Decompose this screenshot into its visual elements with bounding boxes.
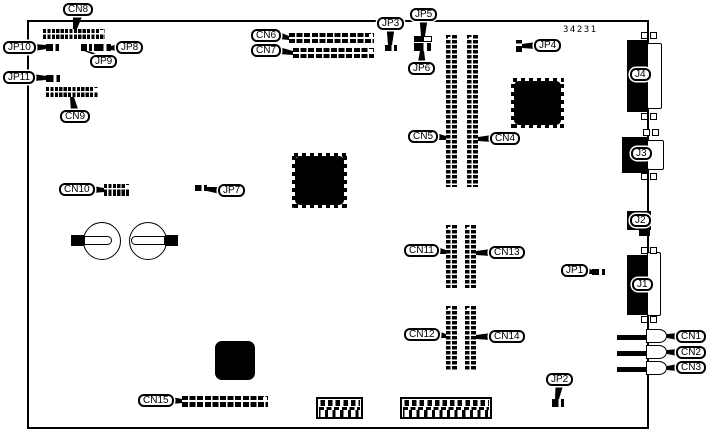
label-j2: J2 — [630, 214, 651, 227]
label-cn13: CN13 — [489, 246, 525, 259]
label-jp7: JP7 — [218, 184, 245, 197]
label-jp4: JP4 — [534, 39, 561, 52]
label-jp2: JP2 — [546, 373, 573, 386]
callout-pointer — [555, 384, 564, 399]
label-cn9: CN9 — [60, 110, 90, 123]
label-cn7: CN7 — [251, 44, 281, 57]
label-jp6: JP6 — [408, 62, 435, 75]
label-j3: J3 — [631, 147, 652, 160]
label-j1: J1 — [632, 278, 653, 291]
label-cn10: CN10 — [59, 183, 95, 196]
label-cn3: CN3 — [676, 361, 706, 374]
label-cn1: CN1 — [676, 330, 706, 343]
label-jp11: JP11 — [3, 71, 35, 84]
callout-pointer — [387, 28, 395, 45]
label-cn2: CN2 — [676, 346, 706, 359]
callout-pointer — [279, 47, 293, 55]
label-jp1: JP1 — [561, 264, 588, 277]
label-cn15: CN15 — [138, 394, 174, 407]
label-j4: J4 — [630, 68, 651, 81]
label-jp5: JP5 — [410, 8, 437, 21]
callout-pointer — [73, 14, 83, 29]
label-cn6: CN6 — [251, 29, 281, 42]
label-jp8: JP8 — [116, 41, 143, 54]
label-cn8: CN8 — [63, 3, 93, 16]
label-cn5: CN5 — [408, 130, 438, 143]
label-cn11: CN11 — [404, 244, 439, 257]
callout-pointer — [420, 19, 428, 36]
label-jp10: JP10 — [3, 41, 36, 54]
label-cn14: CN14 — [489, 330, 525, 343]
pcb-layout-diagram: CN8JP10JP8JP9JP11CN9CN6CN7JP3JP5JP6JP4CN… — [0, 0, 711, 434]
label-cn12: CN12 — [404, 328, 440, 341]
label-jp9: JP9 — [90, 55, 117, 68]
label-cn4: CN4 — [490, 132, 520, 145]
label-jp3: JP3 — [377, 17, 404, 30]
